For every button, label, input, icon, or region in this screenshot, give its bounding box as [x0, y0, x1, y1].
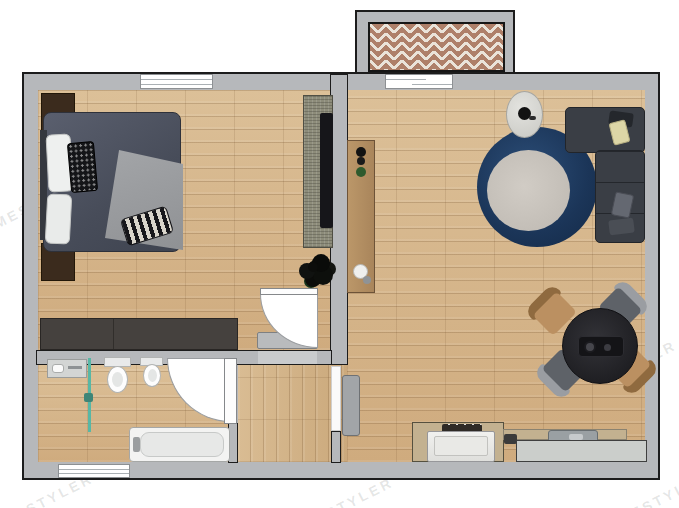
table-knob-small [604, 344, 611, 351]
sliding-door-leaf[interactable] [342, 375, 360, 436]
bedroom-window[interactable] [140, 74, 213, 89]
bedroom-doorway-gap [258, 351, 317, 364]
bathroom-door[interactable] [224, 358, 237, 424]
sideboard[interactable] [347, 140, 375, 293]
bathtub-faucet [133, 437, 140, 452]
decor-item-black [356, 147, 366, 157]
slider-panel-line [412, 84, 452, 85]
sink-faucet [68, 366, 82, 369]
bathroom-window[interactable] [58, 464, 130, 478]
table-knob [584, 341, 596, 353]
balcony-sliding-door[interactable] [385, 74, 453, 89]
window-frame-line [59, 473, 129, 474]
wardrobe[interactable] [40, 318, 238, 350]
bed-pillow [45, 193, 73, 244]
bedroom-door[interactable] [260, 288, 318, 295]
wall-sink[interactable] [47, 359, 87, 378]
dining-table[interactable] [562, 308, 638, 384]
sofa-pillow-grey2 [608, 218, 635, 236]
stove-front [434, 436, 488, 456]
window-frame-line [141, 79, 212, 80]
toilet-bowl-inner [112, 372, 123, 387]
accent-pillow [67, 141, 98, 193]
decor-plant-small [356, 167, 366, 177]
floorplan-canvas: HOMESTYLER HOMESTYLER HOMESTYLER HOMESTY… [0, 0, 679, 508]
chevron-rug[interactable] [368, 22, 505, 72]
double-bed[interactable] [43, 112, 181, 252]
shower-screen-handle [84, 393, 93, 402]
side-table[interactable] [506, 91, 543, 138]
decor-dot-grey [363, 276, 371, 284]
bidet-bowl-inner [148, 369, 157, 382]
hallway-side-wall [331, 431, 341, 463]
hallway-opening [331, 366, 341, 431]
tv[interactable] [320, 113, 333, 228]
toilet-bowl[interactable] [107, 366, 128, 393]
kitchen-island-counter[interactable] [516, 440, 647, 462]
stove[interactable] [427, 431, 495, 462]
window-frame-line [59, 469, 129, 470]
plant[interactable] [308, 262, 318, 272]
slider-panel-line [386, 79, 426, 80]
round-rug-inner [487, 150, 570, 231]
bathtub[interactable] [129, 427, 230, 462]
sink-basin [52, 364, 64, 373]
bathtub-basin [140, 432, 224, 457]
decor-item-black2 [357, 157, 365, 165]
bidet-bowl[interactable] [143, 364, 161, 387]
table-decor-handle [529, 116, 536, 120]
wardrobe-seam [113, 319, 114, 349]
window-frame-line [141, 84, 212, 85]
